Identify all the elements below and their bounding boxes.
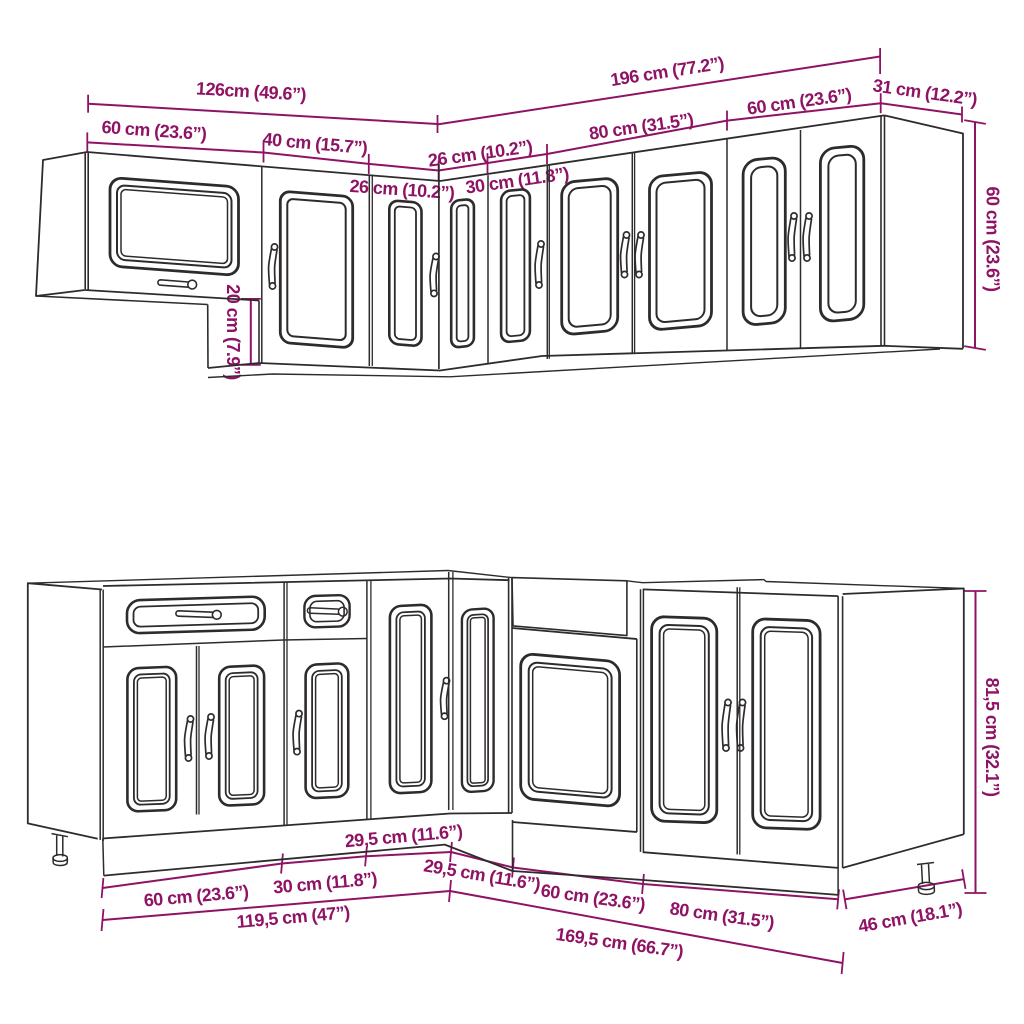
svg-text:60 cm (23.6”): 60 cm (23.6”) <box>983 187 1003 292</box>
svg-text:81,5 cm (32.1”): 81,5 cm (32.1”) <box>982 678 1002 797</box>
